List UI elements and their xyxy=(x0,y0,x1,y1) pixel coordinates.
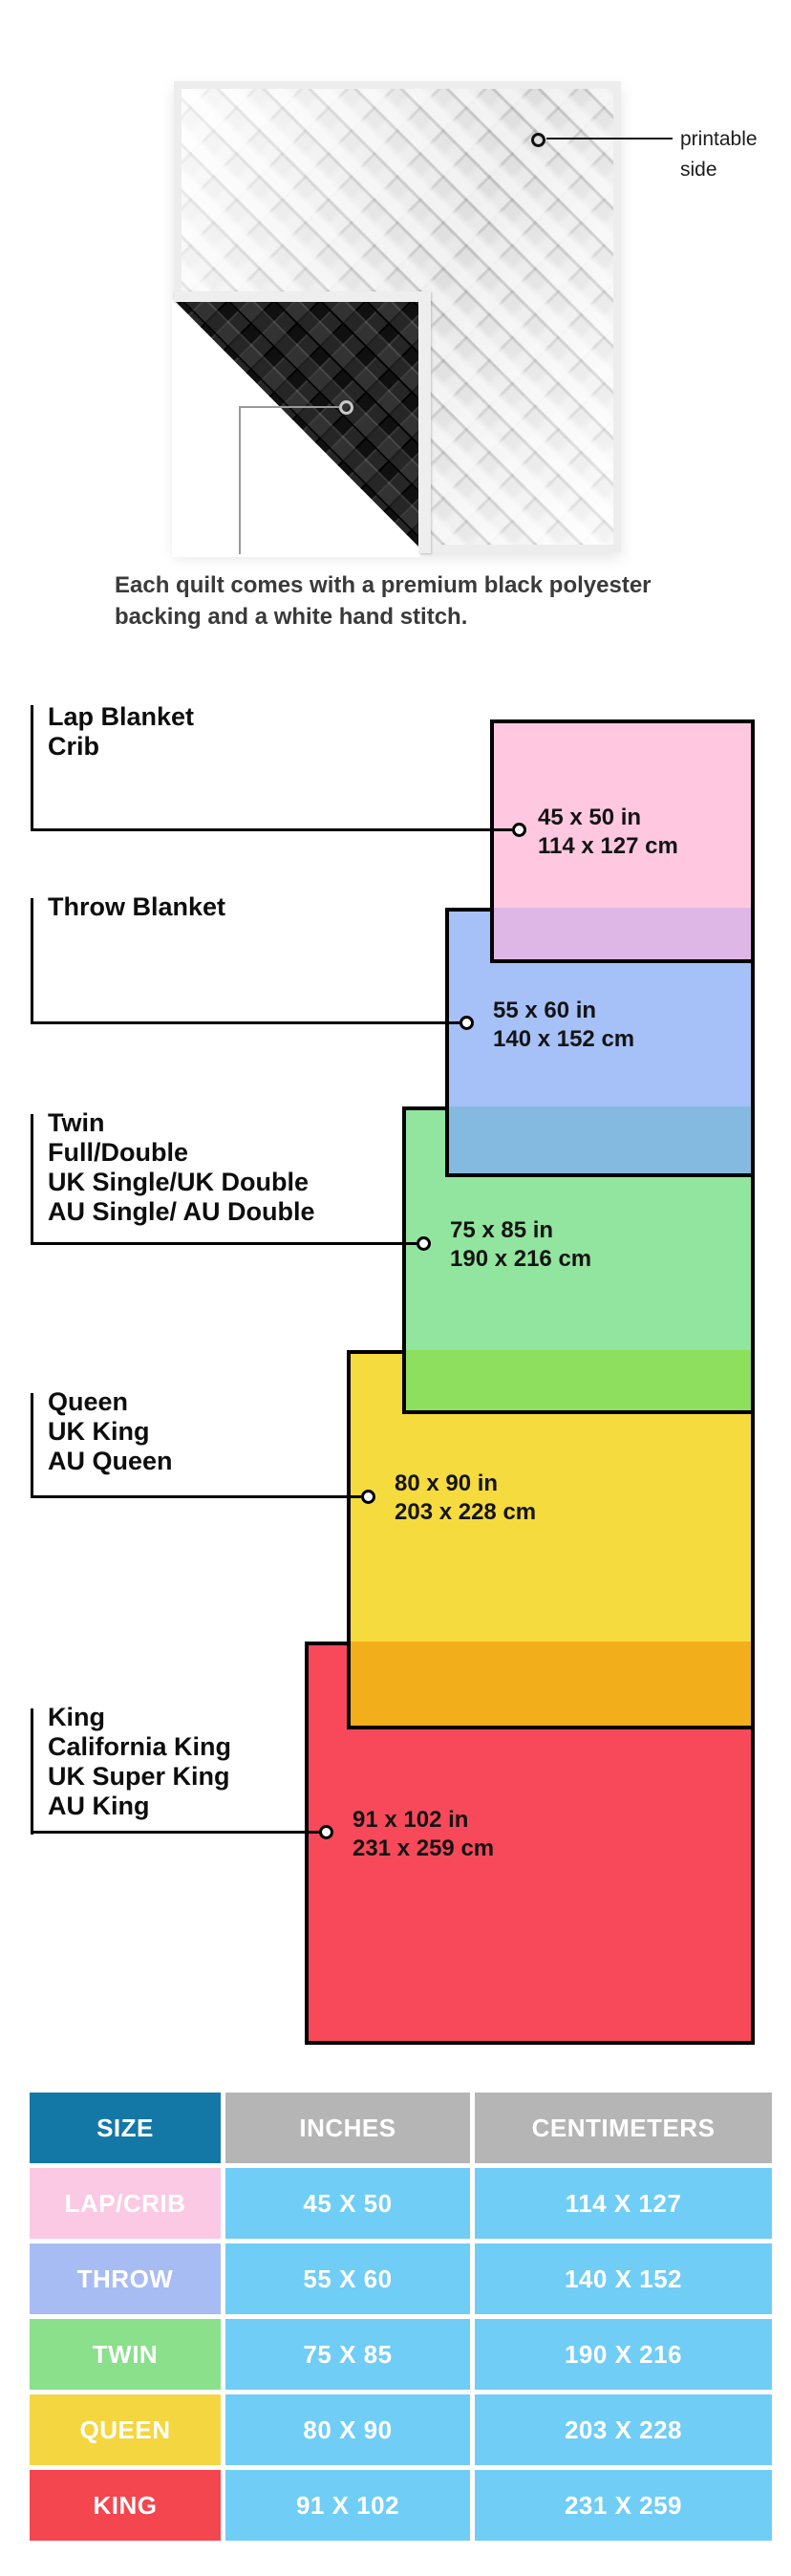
printable-side-label-line1: printable xyxy=(680,124,758,155)
leader-king-dot xyxy=(319,1825,333,1839)
table-row-twin-size: TWIN xyxy=(30,2319,221,2390)
size-queen-cm: 203 x 228 cm xyxy=(395,1499,536,1526)
backing-marker-circle xyxy=(339,400,353,415)
table-row-queen-size: QUEEN xyxy=(30,2394,221,2465)
backing-leader-horizontal xyxy=(239,406,339,408)
label-lap: Lap Blanket Crib xyxy=(48,702,194,762)
size-king-inches: 91 x 102 in xyxy=(353,1807,468,1834)
leader-king-horizontal xyxy=(31,1831,319,1834)
label-king-line2: California King xyxy=(48,1732,231,1762)
leader-queen-horizontal xyxy=(31,1495,361,1498)
quilt-size-infographic: printable side Each quilt comes with a p… xyxy=(0,0,791,2576)
table-row-king-inches: 91 X 102 xyxy=(225,2470,470,2541)
table-row-queen-inches: 80 X 90 xyxy=(225,2394,470,2465)
table-row-lap-cm: 114 X 127 xyxy=(475,2168,772,2239)
size-lap-cm: 114 x 127 cm xyxy=(538,833,678,860)
size-twin-cm: 190 x 216 cm xyxy=(450,1246,591,1273)
backing-caption-line1: Each quilt comes with a premium black po… xyxy=(115,569,652,601)
size-throw-inches: 55 x 60 in xyxy=(493,998,596,1024)
label-king-line1: King xyxy=(48,1703,231,1732)
backing-caption-line2: backing and a white hand stitch. xyxy=(115,601,652,633)
label-twin-line3: UK Single/UK Double xyxy=(48,1168,315,1197)
leader-throw-dot xyxy=(460,1016,474,1030)
label-king: King California King UK Super King AU Ki… xyxy=(48,1703,231,1821)
table-header-size: SIZE xyxy=(30,2093,221,2163)
backing-leader-vertical xyxy=(239,406,241,554)
leader-twin-dot xyxy=(417,1236,431,1251)
label-lap-line1: Lap Blanket xyxy=(48,702,194,732)
label-queen-line3: AU Queen xyxy=(48,1447,173,1476)
table-row-twin-inches: 75 X 85 xyxy=(225,2319,470,2390)
backing-caption: Each quilt comes with a premium black po… xyxy=(115,569,652,633)
size-lap-inches: 45 x 50 in xyxy=(538,805,641,831)
table-row-lap-inches: 45 X 50 xyxy=(225,2168,470,2239)
leader-lap-vertical xyxy=(31,705,33,831)
printable-side-label: printable side xyxy=(680,124,758,185)
quilt-hem-horizontal xyxy=(174,291,430,302)
table-header-centimeters: CENTIMETERS xyxy=(475,2093,772,2163)
leader-queen-vertical xyxy=(31,1393,33,1498)
label-queen: Queen UK King AU Queen xyxy=(48,1387,173,1476)
overlap-band-twin-queen xyxy=(406,1350,751,1410)
label-twin-line1: Twin xyxy=(48,1108,315,1138)
table-row-throw-inches: 55 X 60 xyxy=(225,2243,470,2314)
label-twin-line4: AU Single/ AU Double xyxy=(48,1197,315,1227)
label-king-line3: UK Super King xyxy=(48,1762,231,1792)
leader-king-vertical xyxy=(31,1708,33,1835)
leader-throw-horizontal xyxy=(31,1021,460,1024)
overlap-band-throw-twin xyxy=(449,1106,751,1173)
quilt-hem-vertical xyxy=(418,291,431,553)
printable-side-label-line2: side xyxy=(680,155,758,185)
size-throw-cm: 140 x 152 cm xyxy=(493,1026,634,1053)
table-row-throw-cm: 140 X 152 xyxy=(475,2243,772,2314)
table-row-throw-size: THROW xyxy=(30,2243,221,2314)
size-twin-inches: 75 x 85 in xyxy=(450,1217,553,1244)
label-twin: Twin Full/Double UK Single/UK Double AU … xyxy=(48,1108,315,1227)
overlap-band-lap-throw xyxy=(494,908,751,959)
size-queen-inches: 80 x 90 in xyxy=(395,1470,498,1497)
table-row-lap-size: LAP/CRIB xyxy=(30,2168,221,2239)
overlap-band-queen-king xyxy=(351,1642,751,1726)
size-king-cm: 231 x 259 cm xyxy=(353,1835,494,1862)
leader-twin-vertical xyxy=(31,1114,33,1245)
label-twin-line2: Full/Double xyxy=(48,1138,315,1168)
size-table: SIZE INCHES CENTIMETERS LAP/CRIB 45 X 50… xyxy=(30,2093,772,2541)
leader-queen-dot xyxy=(361,1490,375,1504)
leader-lap-horizontal xyxy=(31,828,512,831)
table-row-king-cm: 231 X 259 xyxy=(475,2470,772,2541)
table-header-inches: INCHES xyxy=(225,2093,470,2163)
label-throw-line1: Throw Blanket xyxy=(48,892,225,922)
printable-side-marker-circle xyxy=(531,133,545,147)
label-lap-line2: Crib xyxy=(48,732,194,762)
table-row-queen-cm: 203 X 228 xyxy=(475,2394,772,2465)
leader-throw-vertical xyxy=(31,898,33,1024)
leader-lap-dot xyxy=(512,823,526,837)
label-queen-line2: UK King xyxy=(48,1417,173,1447)
label-queen-line1: Queen xyxy=(48,1387,173,1417)
label-throw: Throw Blanket xyxy=(48,892,225,922)
leader-twin-horizontal xyxy=(31,1242,417,1245)
label-king-line4: AU King xyxy=(48,1792,231,1821)
table-row-king-size: KING xyxy=(30,2470,221,2541)
printable-side-leader-line xyxy=(546,138,673,140)
table-row-twin-cm: 190 X 216 xyxy=(475,2319,772,2390)
